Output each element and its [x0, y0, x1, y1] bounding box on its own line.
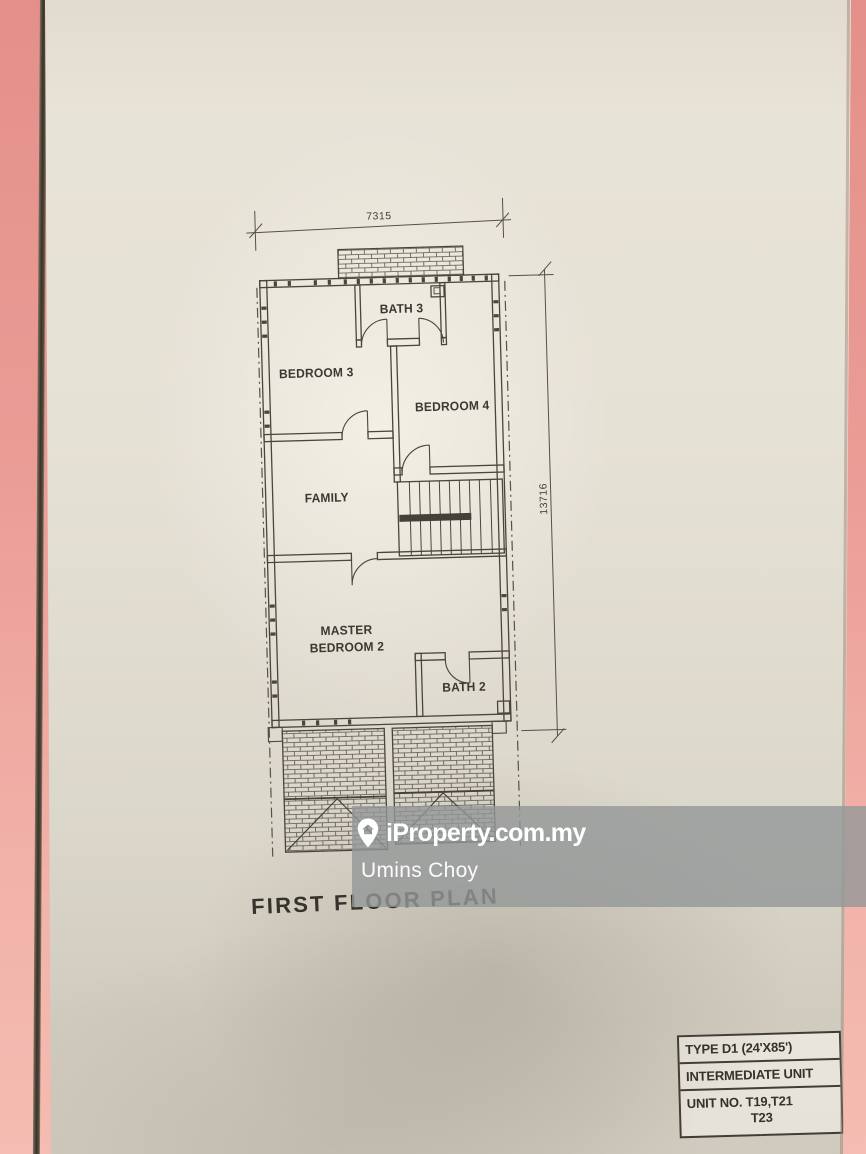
map-pin-house-icon: [357, 818, 379, 848]
photo-shadow-vignette: [0, 0, 866, 1154]
watermark-brand-logo: iProperty.com.my: [357, 818, 586, 848]
photo-of-floor-plan-page: BATH 3 BEDROOM 3 BEDROOM 4 FAMILY MASTER…: [0, 0, 866, 1154]
document-page: BATH 3 BEDROOM 3 BEDROOM 4 FAMILY MASTER…: [0, 0, 866, 1154]
watermark-brand-text: iProperty.com.my: [386, 819, 586, 848]
watermark-band: iProperty.com.my Umins Choy: [352, 806, 866, 907]
watermark-agent-name: Umins Choy: [361, 859, 478, 883]
